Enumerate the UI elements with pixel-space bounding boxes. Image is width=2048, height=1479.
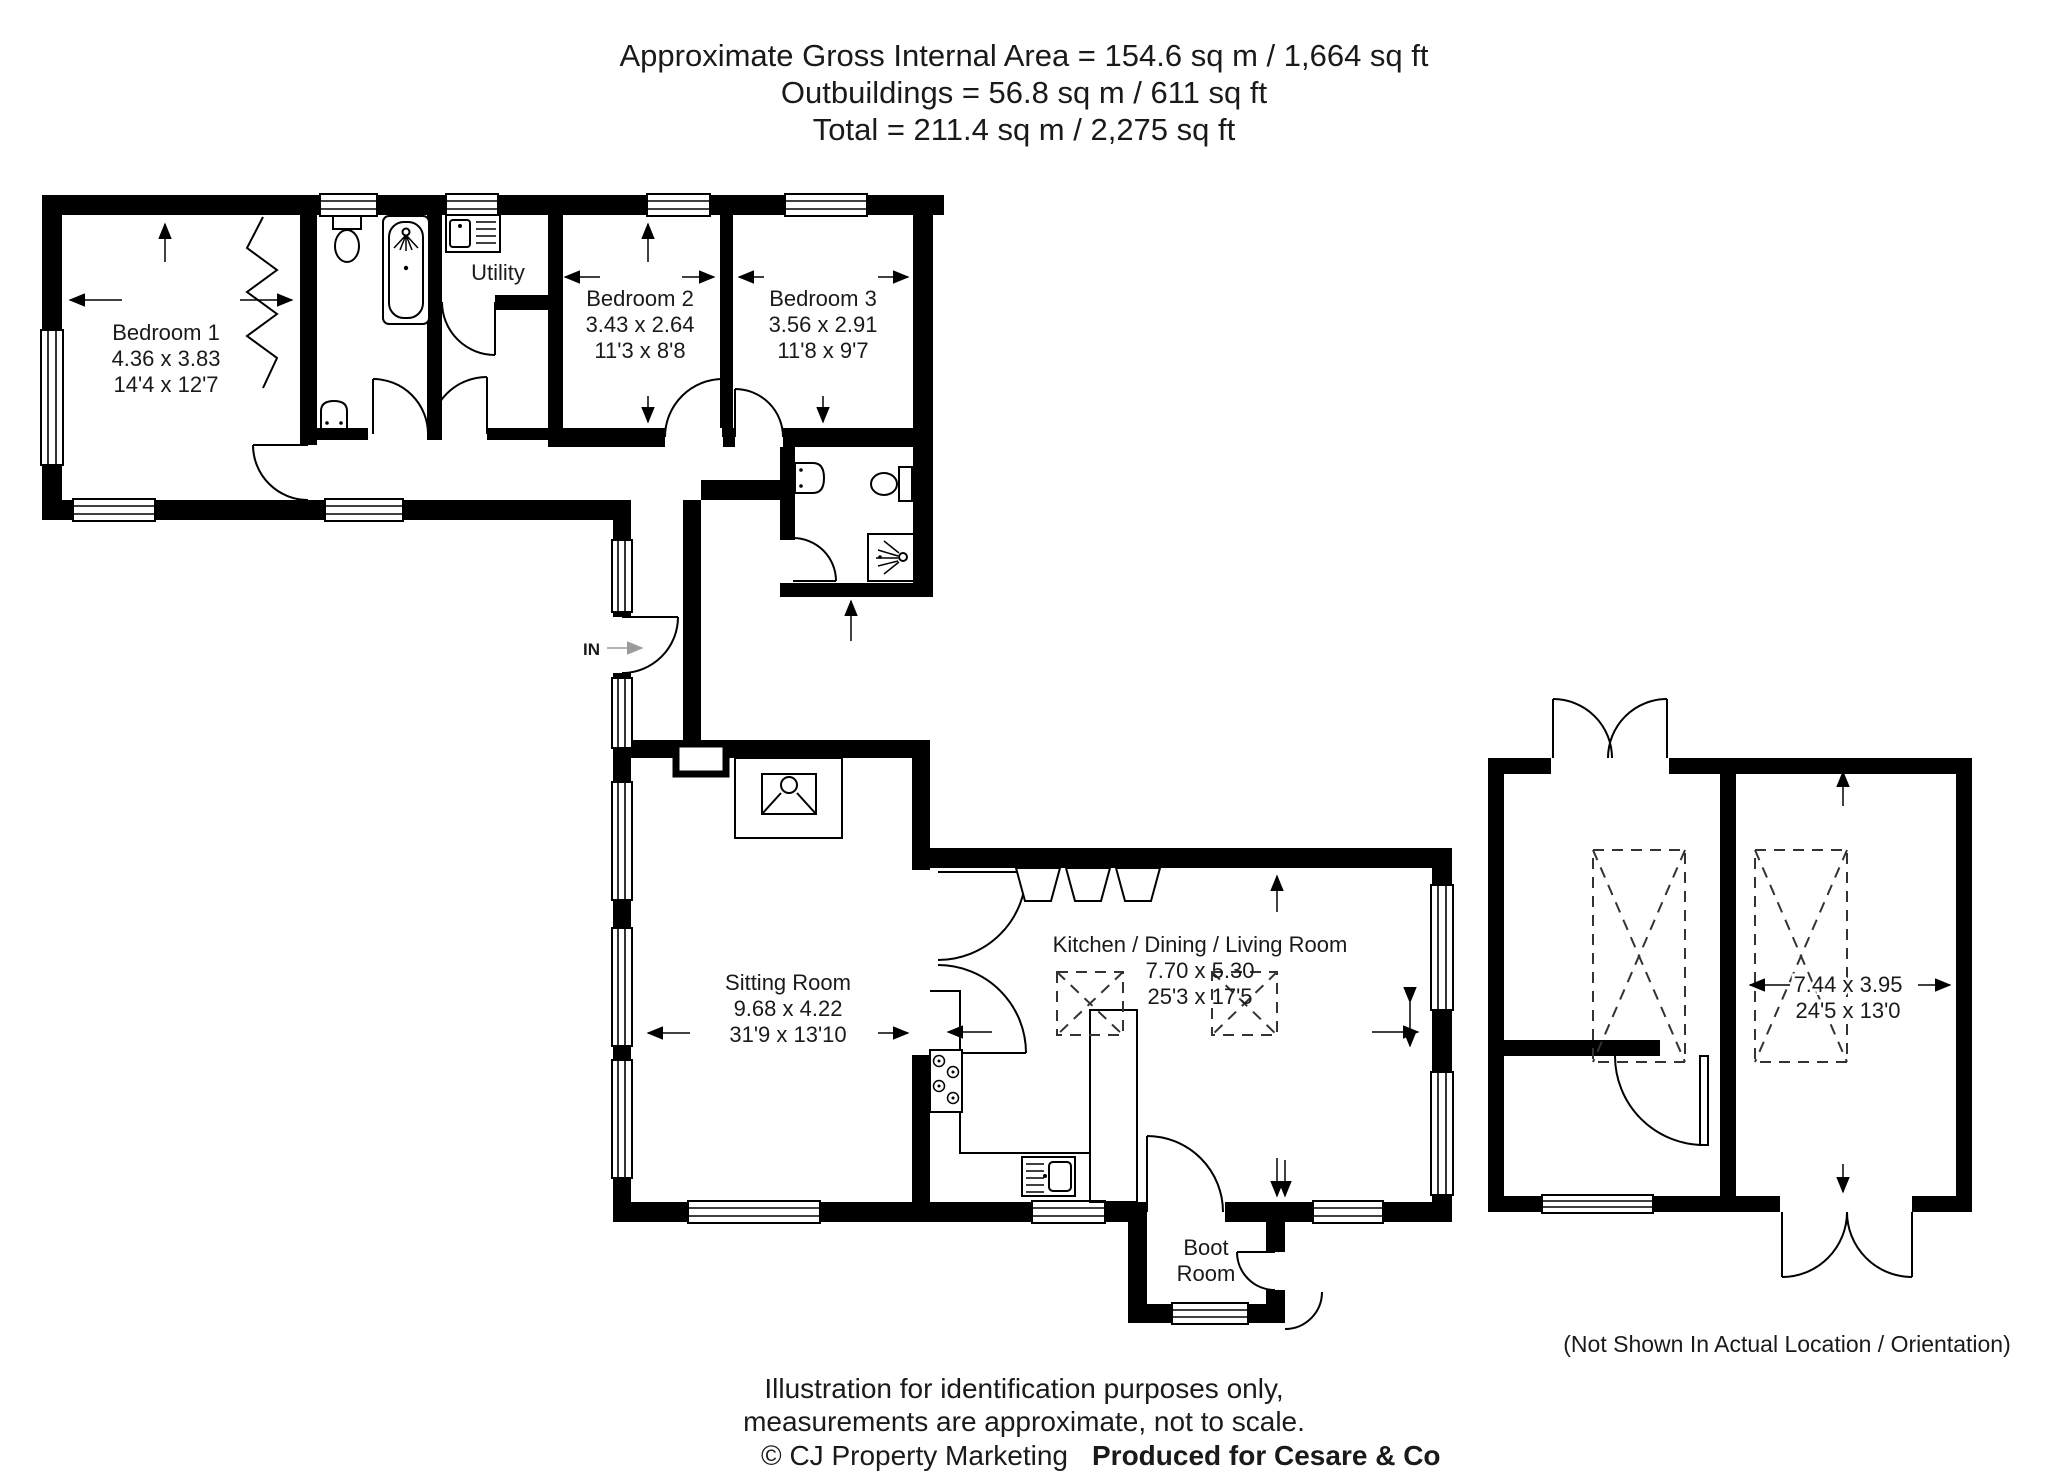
bedroom-1-name: Bedroom 1 xyxy=(112,320,220,345)
window-icon xyxy=(1032,1201,1105,1223)
title-line-1: Approximate Gross Internal Area = 154.6 … xyxy=(619,38,1428,73)
window-icon xyxy=(612,540,632,612)
bedroom-3-label: Bedroom 3 3.56 x 2.91 11'8 x 9'7 xyxy=(769,286,878,363)
title-line-2: Outbuildings = 56.8 sq m / 611 sq ft xyxy=(781,75,1268,110)
outbuilding-dim-imperial: 24'5 x 13'0 xyxy=(1795,998,1900,1023)
boot-room-line1: Boot xyxy=(1183,1235,1228,1260)
window-icon xyxy=(41,330,63,465)
outbuilding-dim-metric: 7.44 x 3.95 xyxy=(1794,972,1903,997)
hob-icon xyxy=(930,1050,962,1112)
title-line-3: Total = 211.4 sq m / 2,275 sq ft xyxy=(813,112,1236,147)
window-icon xyxy=(612,1060,632,1178)
window-icon xyxy=(1542,1195,1653,1213)
sitting-room-imperial: 31'9 x 13'10 xyxy=(729,1022,846,1047)
credit-produced-for: Produced for Cesare & Co xyxy=(1092,1440,1441,1471)
bedroom-2-metric: 3.43 x 2.64 xyxy=(586,312,695,337)
window-icon xyxy=(785,194,867,216)
window-icon xyxy=(446,194,498,216)
window-icon xyxy=(612,678,632,748)
bedroom-2-name: Bedroom 2 xyxy=(586,286,694,311)
bifold-vent-icons xyxy=(1016,868,1160,901)
bedroom-3-name: Bedroom 3 xyxy=(769,286,877,311)
bedroom-3-imperial: 11'8 x 9'7 xyxy=(777,338,868,363)
toilet-icon xyxy=(333,216,361,262)
kitchen-name: Kitchen / Dining / Living Room xyxy=(1053,932,1348,957)
sitting-room-name: Sitting Room xyxy=(725,970,851,995)
credit-marketing: © CJ Property Marketing xyxy=(761,1440,1068,1471)
shower-icon xyxy=(868,534,914,581)
bedroom-1-imperial: 14'4 x 12'7 xyxy=(113,372,218,397)
floorplan-page: Approximate Gross Internal Area = 154.6 … xyxy=(0,0,2048,1479)
window-icon xyxy=(1313,1201,1383,1223)
utility-label: Utility xyxy=(471,260,525,285)
bedroom-1-label: Bedroom 1 4.36 x 3.83 14'4 x 12'7 xyxy=(112,320,221,397)
window-icon xyxy=(688,1201,820,1223)
boot-room-line2: Room xyxy=(1177,1261,1236,1286)
disclaimer-line-1: Illustration for identification purposes… xyxy=(764,1373,1283,1404)
utility-sink-icon xyxy=(446,215,500,252)
kitchen-sink-icon xyxy=(1022,1157,1075,1196)
kitchen-metric: 7.70 x 5.30 xyxy=(1146,958,1255,983)
bedroom-3-metric: 3.56 x 2.91 xyxy=(769,312,878,337)
disclaimer-line-2: measurements are approximate, not to sca… xyxy=(743,1406,1305,1437)
boot-room-label: Boot Room xyxy=(1177,1235,1236,1286)
outbuilding-note: (Not Shown In Actual Location / Orientat… xyxy=(1563,1331,2010,1357)
window-icon xyxy=(325,499,403,521)
window-icon xyxy=(1431,885,1453,1010)
sink-icon xyxy=(321,401,347,429)
sitting-room-metric: 9.68 x 4.22 xyxy=(734,996,843,1021)
window-icon xyxy=(647,194,710,216)
window-icon xyxy=(1172,1303,1248,1324)
window-icon xyxy=(612,782,632,900)
bedroom-2-imperial: 11'3 x 8'8 xyxy=(594,338,685,363)
sitting-room-label: Sitting Room 9.68 x 4.22 31'9 x 13'10 xyxy=(725,970,851,1047)
bathtub-icon xyxy=(383,216,429,324)
window-icon xyxy=(320,194,377,216)
shower-room-sink-icon xyxy=(795,463,824,493)
window-icon xyxy=(612,928,632,1046)
kitchen-imperial: 25'3 x 17'5 xyxy=(1147,984,1252,1009)
entrance-in-label: IN xyxy=(583,640,600,659)
bedroom-1-metric: 4.36 x 3.83 xyxy=(112,346,221,371)
window-icon xyxy=(1431,1072,1453,1195)
entry-cupboard xyxy=(676,744,726,774)
window-icon xyxy=(73,499,155,521)
bedroom-2-label: Bedroom 2 3.43 x 2.64 11'3 x 8'8 xyxy=(586,286,695,363)
floorplan-svg: Approximate Gross Internal Area = 154.6 … xyxy=(0,0,2048,1479)
